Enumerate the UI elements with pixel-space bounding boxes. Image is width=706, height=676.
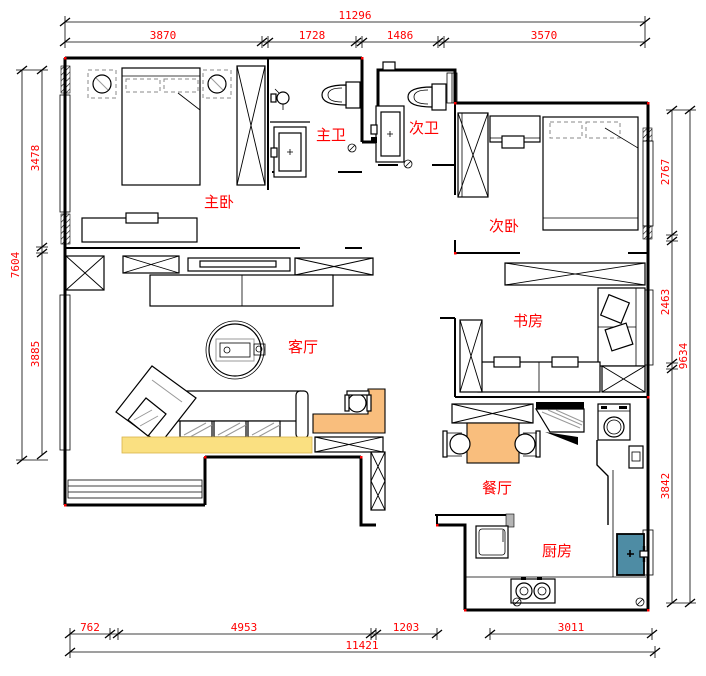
sofa: [116, 366, 308, 444]
dim-right-seg-3: 3842: [659, 473, 672, 500]
wall-end-cap: [506, 514, 514, 527]
round-coffee-table: [206, 321, 265, 379]
washing-machine: [598, 404, 630, 440]
study-furniture: 书房: [460, 263, 645, 392]
desk-study: [478, 357, 600, 392]
desk-second-bedroom: [490, 116, 540, 148]
sideboard: [536, 402, 584, 445]
sofa-rug: [122, 437, 312, 453]
dining-table: [467, 423, 519, 463]
tv-console: [150, 275, 333, 306]
desk-chair: [345, 391, 371, 412]
shower-head: [271, 89, 289, 110]
room-label-dining: 餐厅: [482, 479, 512, 497]
wardrobe-second: [458, 113, 488, 197]
second-bath-furniture: 次卫: [371, 84, 446, 162]
sofa-study: [598, 288, 645, 366]
dim-left-total: 7604: [9, 251, 22, 278]
dresser: [82, 213, 197, 242]
window-bay-bottom-left: [68, 480, 202, 498]
wall-notch: [383, 62, 395, 70]
cabinet-below-desk: [315, 437, 383, 452]
vanity-sink-master: [271, 127, 306, 177]
window-master-bedroom-left: [60, 95, 70, 212]
cabinet-living-xbox: [66, 256, 104, 290]
fridge: [476, 526, 508, 558]
room-label-kitchen: 厨房: [542, 542, 572, 560]
wall-hatch-block: [643, 226, 652, 239]
toilet-second: [408, 84, 446, 110]
dim-bottom-total: 11421: [345, 639, 378, 652]
master-bedroom-furniture: 主卧: [82, 66, 265, 242]
dimension-bottom: 762 4953 1203 3011 11421: [65, 621, 660, 658]
floor-drain: [636, 598, 644, 606]
window-living-left: [60, 295, 70, 450]
wall-hatch-block: [643, 128, 652, 141]
dining-chair-left: [443, 431, 470, 457]
wardrobe-master: [237, 66, 265, 185]
floor-plan-page: 11296 3870 1728 1486 3570 7604 3478 3885…: [0, 0, 706, 676]
dim-left-seg-2: 3885: [29, 341, 42, 368]
cabinet-study-top: [505, 263, 645, 285]
gas-stove: [511, 577, 555, 603]
dim-top-seg-4: 3570: [531, 29, 558, 42]
water-heater-switch: [629, 446, 643, 468]
dimension-top: 11296 3870 1728 1486 3570: [60, 9, 650, 48]
bed-second: [543, 117, 638, 230]
wardrobe-study: [460, 320, 482, 392]
window-second-bedroom-right: [643, 141, 653, 226]
nightstand-right: [203, 70, 231, 98]
cabinet-dining: [452, 404, 533, 423]
dim-right-seg-2: 2463: [659, 289, 672, 316]
room-label-master-bath: 主卫: [316, 126, 346, 144]
vanity-sink-second: [371, 106, 404, 162]
dim-bottom-seg-1: 762: [80, 621, 100, 634]
dim-right-total: 9634: [677, 342, 690, 369]
desk-living-corner: [313, 389, 385, 433]
dim-right-seg-1: 2767: [659, 159, 672, 186]
dim-top-seg-1: 3870: [150, 29, 177, 42]
cabinet-corridor-vertical: [371, 452, 385, 510]
room-label-living: 客厅: [288, 338, 318, 356]
dim-bottom-seg-4: 3011: [558, 621, 585, 634]
kitchen-sink: [617, 534, 648, 575]
room-label-second-bedroom: 次卧: [489, 217, 519, 235]
room-label-master-bedroom: 主卧: [204, 193, 234, 211]
second-bedroom-furniture: 次卧: [458, 113, 638, 235]
toilet-master: [322, 82, 360, 108]
cabinet-study-corner: [602, 366, 645, 392]
dim-left-seg-1: 3478: [29, 145, 42, 172]
nightstand-left: [88, 70, 116, 98]
floor-plan-drawing: 11296 3870 1728 1486 3570 7604 3478 3885…: [0, 0, 706, 676]
dim-top-total: 11296: [338, 9, 371, 22]
wall-hatch-block: [61, 214, 70, 244]
dimension-right: 2767 2463 3842 9634: [659, 106, 696, 607]
floor-drain: [348, 144, 356, 152]
room-label-study: 书房: [513, 312, 543, 330]
room-label-second-bath: 次卫: [409, 119, 439, 137]
floor-drain: [404, 160, 412, 168]
dim-top-seg-2: 1728: [299, 29, 326, 42]
dim-top-seg-3: 1486: [387, 29, 414, 42]
living-room-furniture: 客厅: [66, 256, 385, 510]
dim-bottom-seg-2: 4953: [231, 621, 258, 634]
tv-wall-cabinet-left: [123, 256, 179, 273]
tv-wall-cabinet-right: [295, 258, 373, 275]
tv-shelf: [188, 258, 290, 271]
dimension-left: 7604 3478 3885: [9, 66, 48, 464]
dim-bottom-seg-3: 1203: [393, 621, 420, 634]
wall-hatch-block: [61, 66, 70, 93]
double-bed: [122, 68, 200, 185]
